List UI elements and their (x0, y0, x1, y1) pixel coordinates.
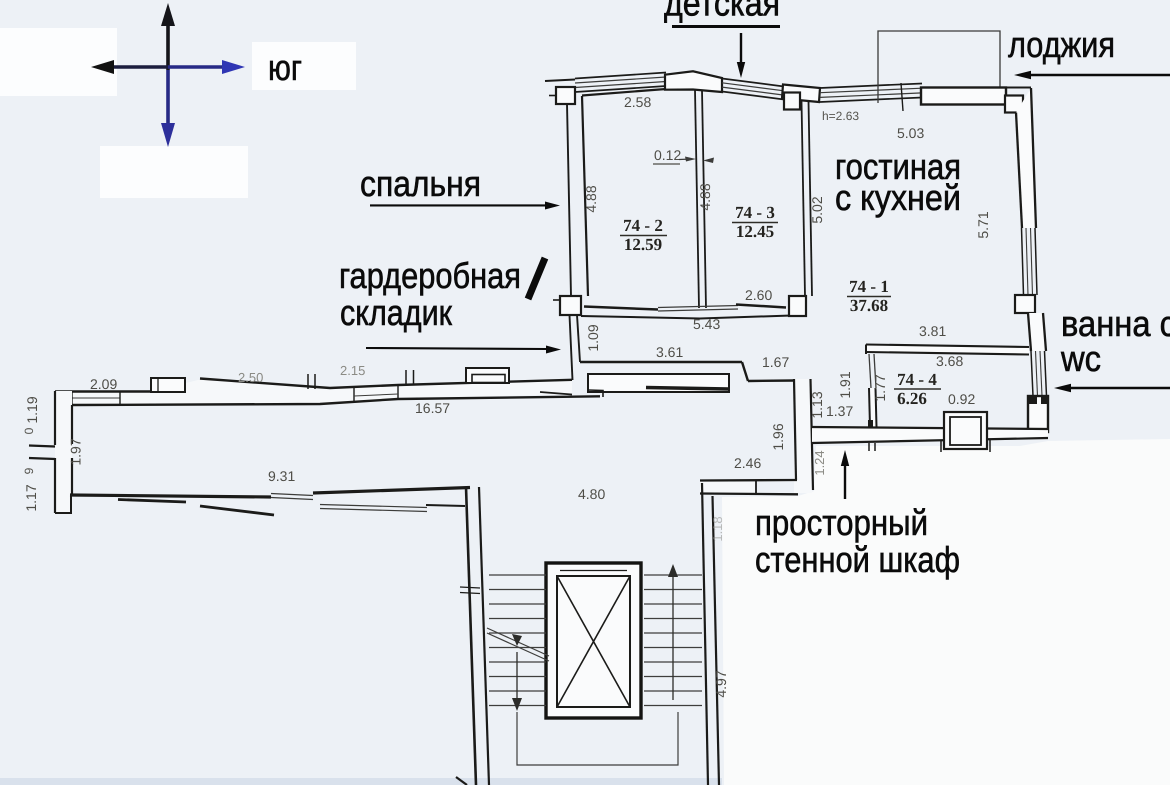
svg-text:с кухней: с кухней (835, 177, 961, 218)
svg-text:3.61: 3.61 (656, 344, 683, 360)
svg-text:5.43: 5.43 (693, 316, 720, 332)
svg-text:детская: детская (664, 0, 780, 24)
svg-text:складик: складик (340, 292, 452, 333)
svg-text:2.15: 2.15 (340, 363, 365, 378)
svg-text:2.09: 2.09 (90, 376, 117, 392)
svg-text:74 - 3: 74 - 3 (735, 203, 775, 222)
svg-text:5.02: 5.02 (809, 196, 825, 223)
svg-text:1.96: 1.96 (770, 423, 786, 450)
svg-text:лоджия: лоджия (1008, 24, 1115, 65)
svg-text:5.03: 5.03 (897, 125, 924, 141)
svg-text:1.19: 1.19 (24, 396, 40, 423)
svg-text:стенной шкаф: стенной шкаф (755, 539, 960, 580)
svg-text:1.24: 1.24 (812, 450, 827, 475)
svg-text:2.46: 2.46 (734, 455, 761, 471)
svg-text:0.12: 0.12 (654, 147, 681, 163)
svg-text:3.81: 3.81 (919, 323, 946, 339)
svg-text:12.59: 12.59 (624, 235, 662, 254)
svg-text:3.68: 3.68 (936, 353, 963, 369)
svg-text:1.77: 1.77 (872, 374, 888, 401)
svg-text:74 - 1: 74 - 1 (849, 277, 889, 296)
svg-text:просторный: просторный (755, 502, 928, 543)
svg-text:0: 0 (22, 427, 36, 434)
svg-text:гардеробная: гардеробная (339, 255, 521, 296)
svg-text:6.26: 6.26 (897, 389, 927, 408)
svg-text:4.88: 4.88 (583, 185, 599, 212)
svg-text:1.18: 1.18 (710, 516, 725, 541)
svg-text:h=2.63: h=2.63 (822, 109, 859, 123)
svg-text:1.67: 1.67 (762, 354, 789, 370)
svg-text:юг: юг (268, 47, 302, 88)
svg-text:37.68: 37.68 (850, 296, 888, 315)
svg-text:2.50: 2.50 (238, 370, 263, 385)
svg-text:wc: wc (1060, 338, 1101, 379)
svg-text:1.91: 1.91 (837, 371, 853, 398)
svg-text:16.57: 16.57 (415, 400, 450, 416)
svg-text:1.97: 1.97 (68, 438, 84, 465)
svg-text:4.97: 4.97 (713, 670, 729, 697)
svg-text:0.92: 0.92 (948, 391, 975, 407)
svg-text:2.60: 2.60 (745, 287, 772, 303)
svg-text:4.80: 4.80 (578, 486, 605, 502)
svg-text:2.58: 2.58 (624, 94, 651, 110)
svg-text:74 - 2: 74 - 2 (623, 216, 663, 235)
svg-text:12.45: 12.45 (736, 222, 774, 241)
svg-text:1.17: 1.17 (23, 484, 39, 511)
svg-text:1.13: 1.13 (809, 391, 825, 418)
svg-text:1.09: 1.09 (585, 324, 601, 351)
svg-text:9: 9 (22, 467, 36, 474)
svg-text:9.31: 9.31 (268, 468, 295, 484)
svg-text:74 - 4: 74 - 4 (897, 370, 937, 389)
svg-text:спальня: спальня (360, 163, 481, 204)
svg-text:5.71: 5.71 (975, 211, 991, 238)
svg-text:4.88: 4.88 (697, 183, 713, 210)
svg-text:1.37: 1.37 (826, 403, 853, 419)
